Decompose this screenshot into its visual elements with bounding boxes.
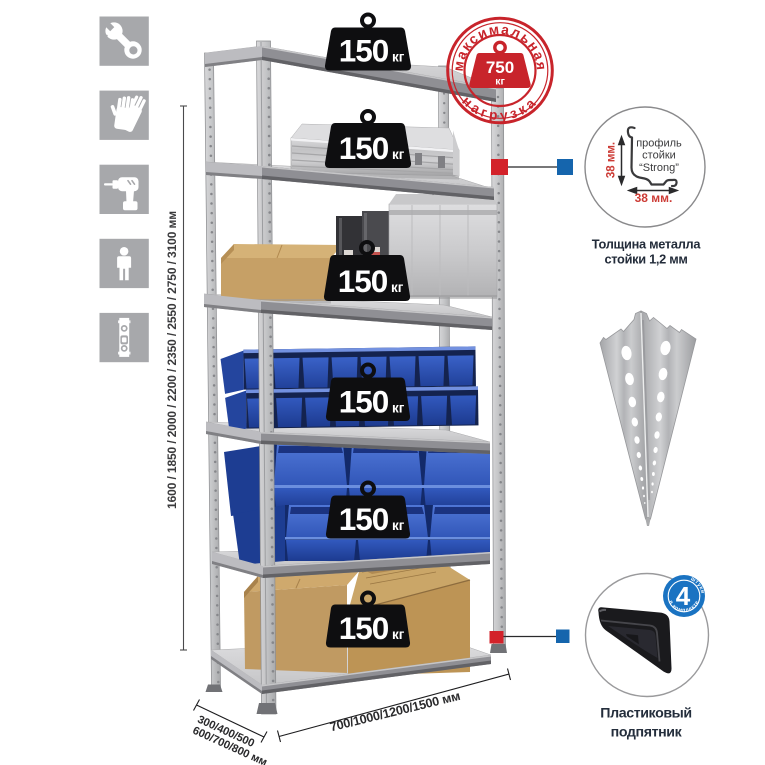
svg-text:38 мм.: 38 мм. — [606, 142, 618, 178]
svg-text:150: 150 — [339, 384, 389, 420]
svg-text:750: 750 — [486, 58, 514, 77]
svg-text:кг: кг — [392, 50, 405, 65]
svg-text:150: 150 — [338, 263, 388, 299]
svg-text:Толщина металла: Толщина металла — [592, 237, 702, 252]
svg-text:подпятник: подпятник — [611, 725, 683, 741]
svg-text:38 мм.: 38 мм. — [635, 191, 673, 205]
svg-text:4: 4 — [676, 581, 691, 611]
svg-text:кг: кг — [391, 280, 404, 295]
svg-text:кг: кг — [495, 76, 505, 88]
svg-text:1600 / 1850 / 2000 / 2200 / 23: 1600 / 1850 / 2000 / 2200 / 2350 / 2550 … — [165, 211, 179, 509]
svg-text:150: 150 — [339, 501, 389, 537]
svg-text:Пластиковый: Пластиковый — [600, 706, 691, 722]
svg-text:профиль: профиль — [636, 138, 682, 150]
svg-text:150: 150 — [339, 33, 389, 69]
svg-text:кг: кг — [392, 627, 405, 642]
svg-text:стойки 1,2 мм: стойки 1,2 мм — [604, 252, 687, 267]
svg-text:150: 150 — [339, 610, 389, 646]
svg-text:стойки: стойки — [642, 150, 676, 162]
svg-text:кг: кг — [392, 518, 405, 533]
svg-text:“Strong”: “Strong” — [639, 162, 679, 174]
svg-text:кг: кг — [392, 147, 405, 162]
svg-text:кг: кг — [392, 401, 405, 416]
svg-text:150: 150 — [339, 130, 389, 166]
